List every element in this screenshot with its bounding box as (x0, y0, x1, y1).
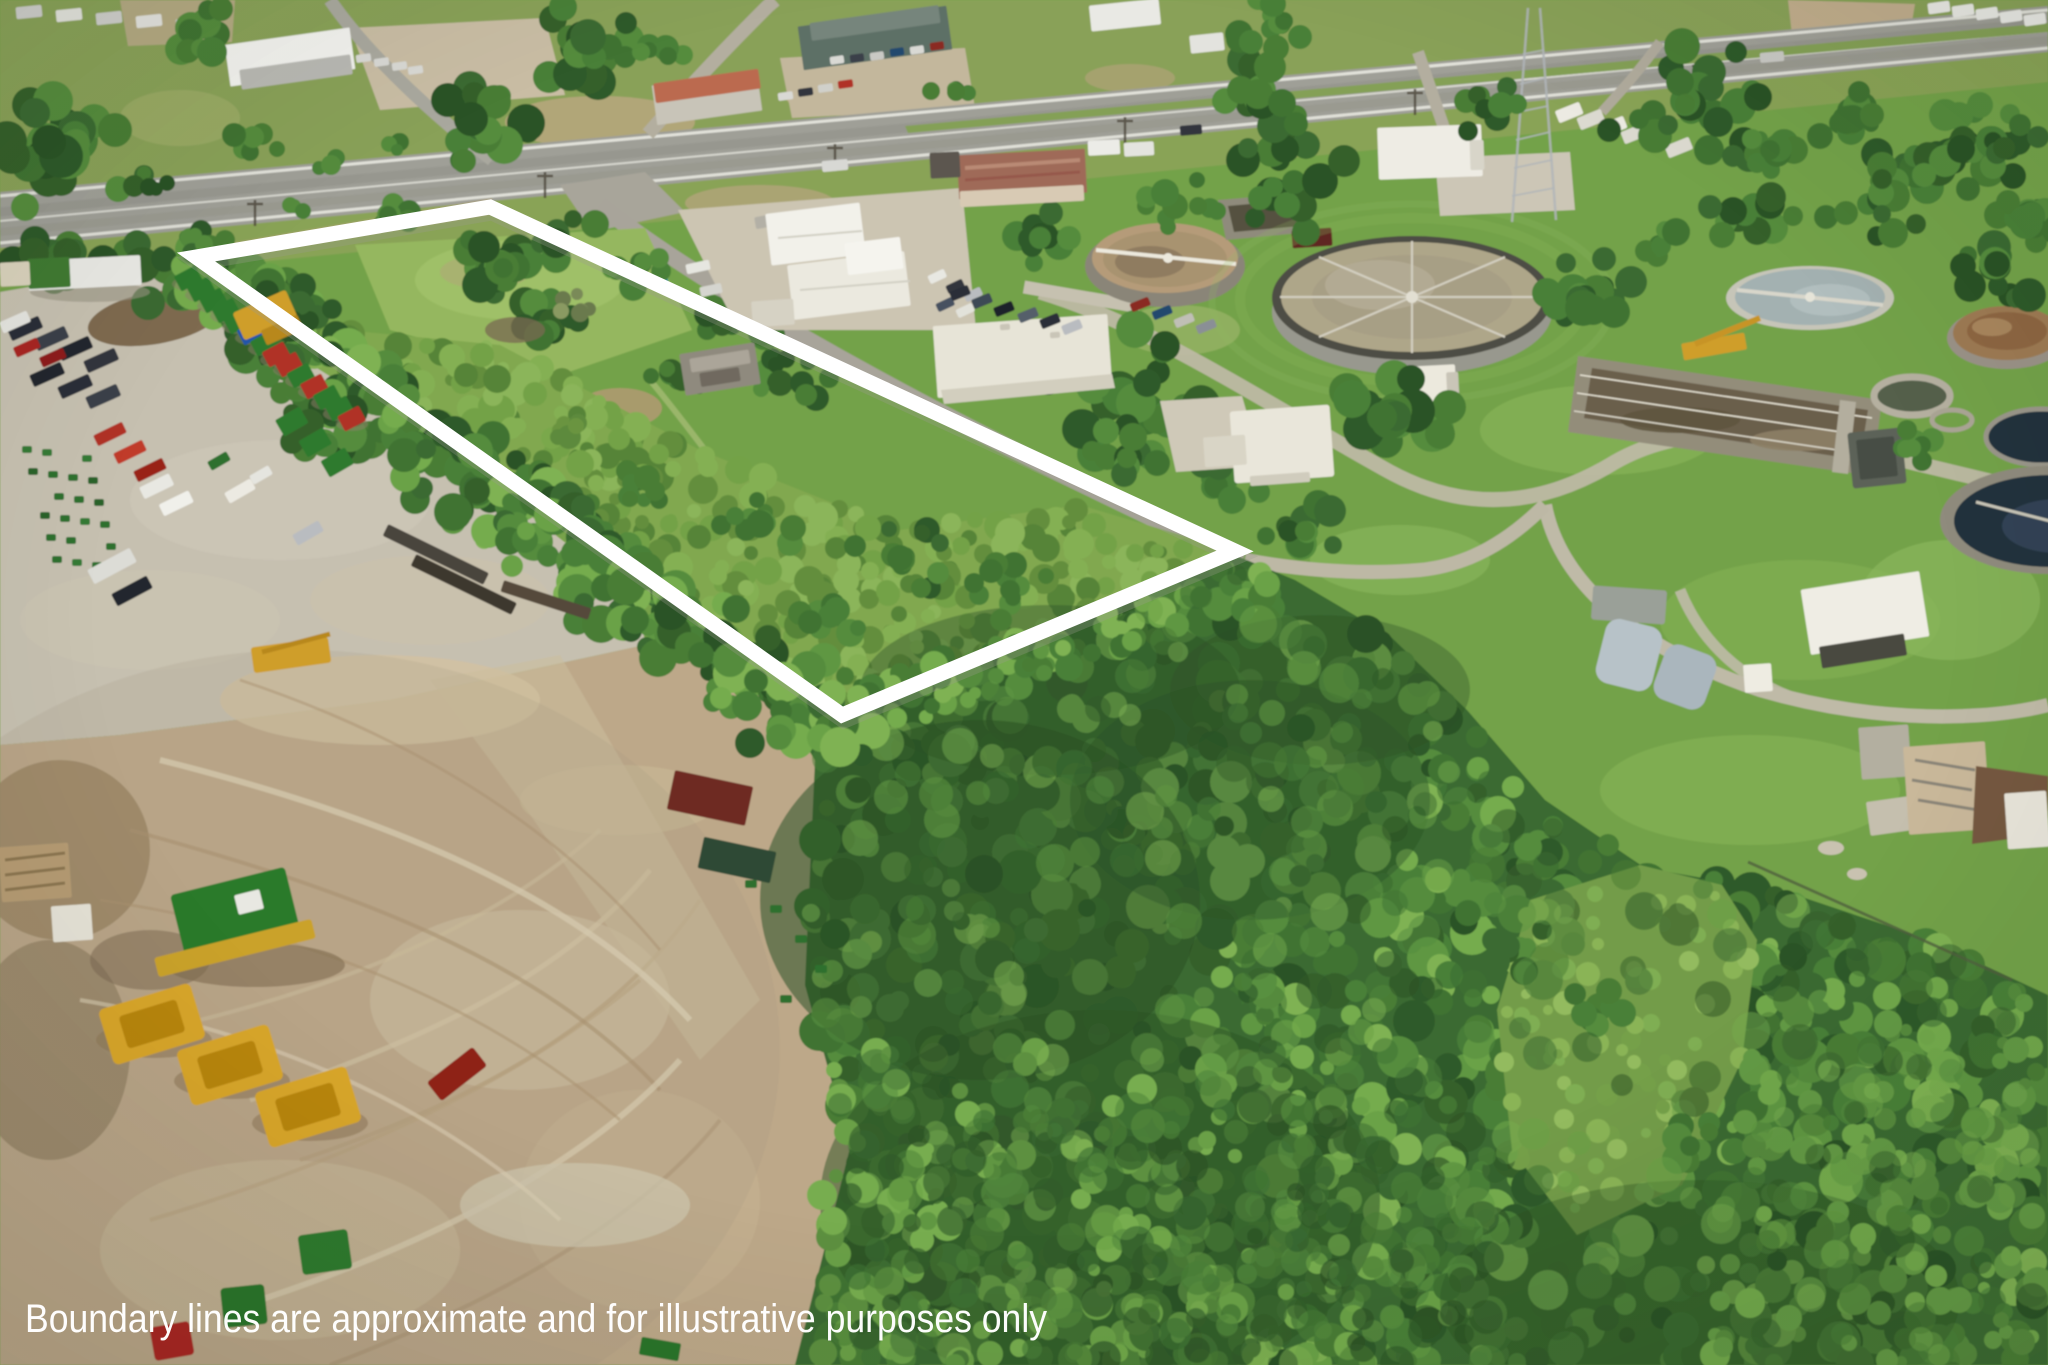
svg-text:Boundary lines are approximate: Boundary lines are approximate and for i… (25, 1297, 1047, 1341)
